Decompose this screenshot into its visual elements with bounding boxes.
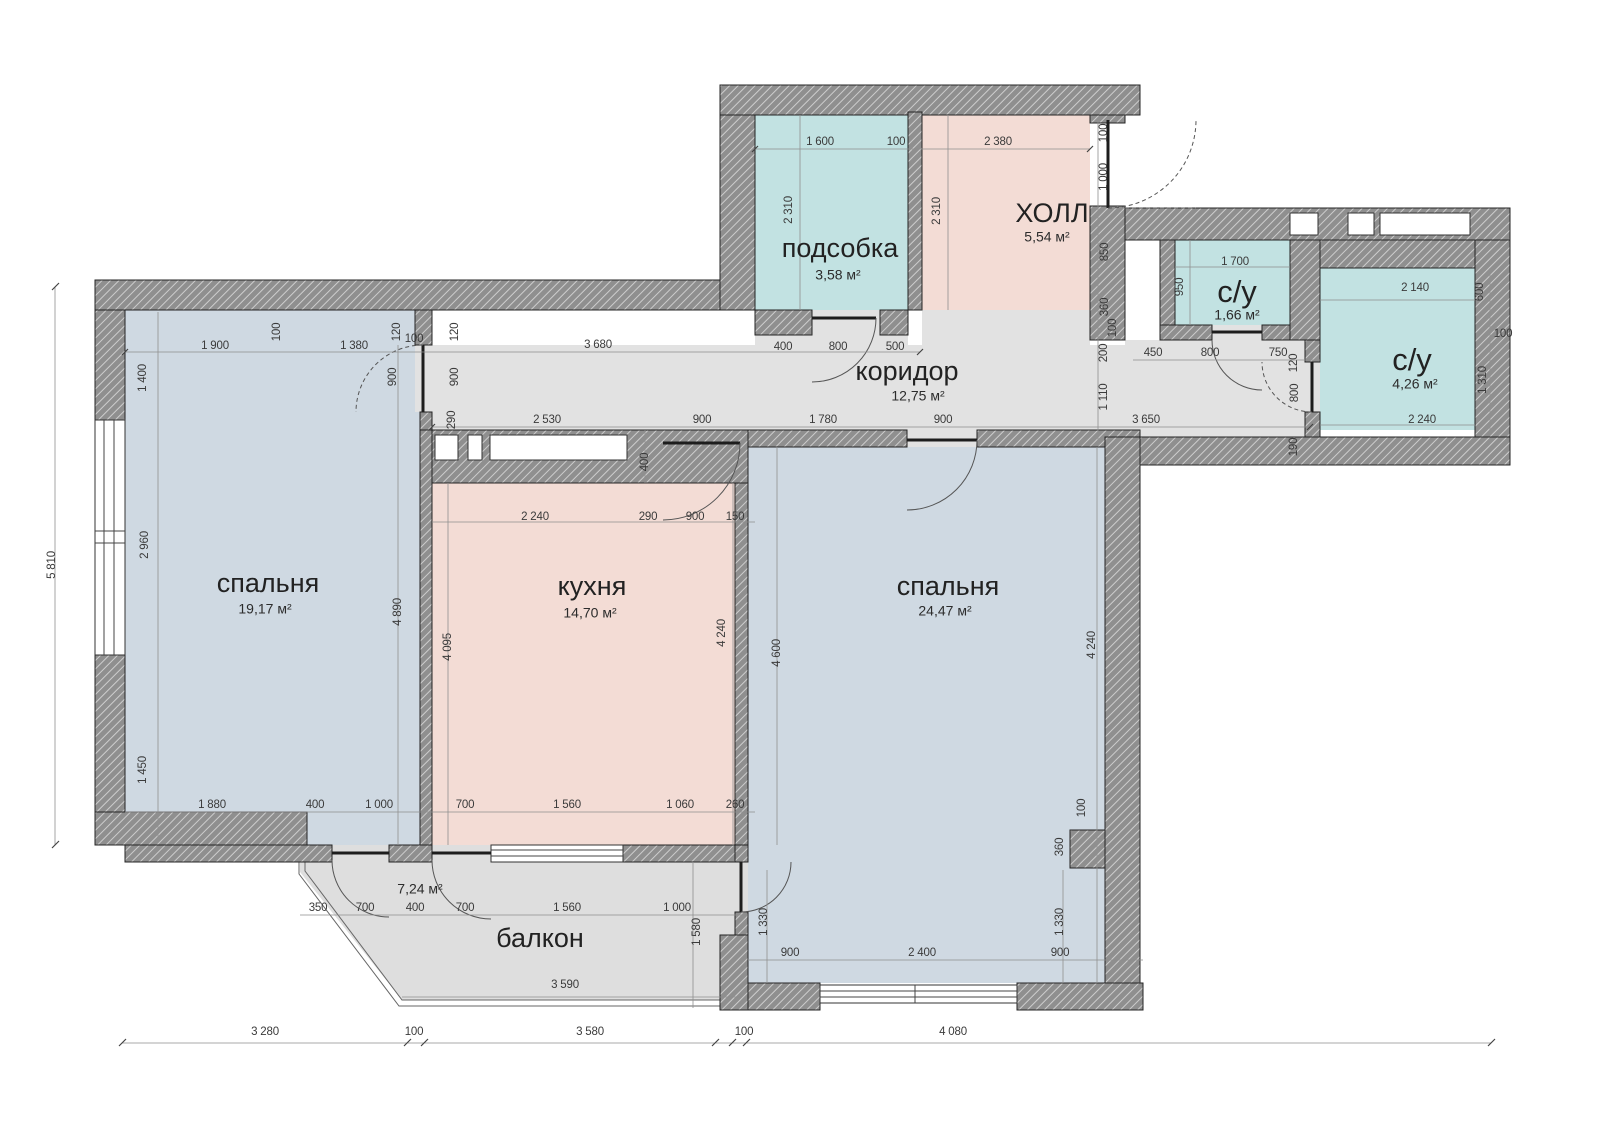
dimension-label: 200	[1098, 344, 1110, 363]
dimension-label: 1 310	[1477, 366, 1489, 394]
dimension-label: 750	[1269, 347, 1288, 359]
dimension-label: 4 240	[716, 619, 728, 647]
dimension-label: 2 530	[533, 414, 561, 426]
dimension-label: 900	[387, 368, 399, 387]
dimension-label: 400	[639, 453, 651, 472]
dimension-label: 800	[829, 341, 848, 353]
dimension-label: 2 240	[521, 511, 549, 523]
dimension-label: 290	[446, 411, 458, 430]
dimension-label: 3 590	[551, 979, 579, 991]
dimension-label: 4 080	[939, 1026, 967, 1038]
dimension-label: 1 900	[201, 340, 229, 352]
dimension-label: 4 890	[392, 598, 404, 626]
dimension-label: 1 560	[553, 799, 581, 811]
dimension-label: 350	[309, 902, 328, 914]
dimension-label: 100	[735, 1026, 754, 1038]
dimension-label: 2 240	[1408, 414, 1436, 426]
bathroom-large-name: с/у	[1392, 342, 1432, 377]
dimension-label: 360	[1099, 298, 1111, 317]
bedroom-left-area: 19,17 м²	[238, 601, 292, 617]
dimension-label: 2 310	[931, 197, 943, 225]
dimension-label: 1 330	[758, 908, 770, 936]
dimension-label: 400	[406, 902, 425, 914]
bathroom-small-area: 1,66 м²	[1214, 307, 1260, 323]
dimension-label: 1 400	[137, 364, 149, 392]
dimension-label: 4 600	[771, 639, 783, 667]
dimension-label: 900	[693, 414, 712, 426]
window-kitchen-balcony	[491, 845, 623, 862]
bedroom-left-name: спальня	[217, 568, 320, 598]
corridor-floor-under-hall	[922, 310, 1090, 345]
dimension-label: 500	[886, 341, 905, 353]
dimension-label: 1 880	[198, 799, 226, 811]
dimension-label: 100	[1107, 319, 1119, 338]
dimension-label: 400	[306, 799, 325, 811]
dimension-label: 120	[391, 323, 403, 342]
balcony-name: балкон	[496, 923, 584, 953]
dimension-label: 2 140	[1401, 282, 1429, 294]
dimension-label: 3 680	[584, 339, 612, 351]
dimension-label: 4 240	[1086, 631, 1098, 659]
dimension-label: 190	[1288, 438, 1300, 457]
dimension-label: 1 700	[1221, 256, 1249, 268]
dimension-label: 260	[726, 799, 745, 811]
dimension-label: 100	[271, 323, 283, 342]
dimension-label: 700	[456, 902, 475, 914]
dimension-label: 900	[1051, 947, 1070, 959]
hall-name: ХОЛЛ	[1015, 198, 1088, 228]
dimension-label: 3 650	[1132, 414, 1160, 426]
dimension-label: 1 450	[137, 756, 149, 784]
bedroom-right-area: 24,47 м²	[918, 603, 972, 619]
dimension-label: 2 400	[908, 947, 936, 959]
bathroom-small-name: с/у	[1217, 274, 1257, 309]
corridor-name: коридор	[855, 356, 958, 386]
dimension-label: 2 310	[783, 196, 795, 224]
dimension-label: 3 280	[251, 1026, 279, 1038]
window-bedroom-left	[95, 420, 125, 655]
door-arc-entrance	[1108, 120, 1196, 208]
dimension-label: 600	[1474, 283, 1486, 302]
dimension-label: 100	[1494, 328, 1513, 340]
dimension-label: 3 580	[576, 1026, 604, 1038]
dimension-label: 4 095	[442, 633, 454, 661]
utility-name: подсобка	[782, 233, 899, 263]
dimension-label: 5 810	[46, 551, 58, 579]
dimension-label: 1 600	[806, 136, 834, 148]
dimension-label: 1 780	[809, 414, 837, 426]
floor-plan-page: спальня 19,17 м² кухня 14,70 м² спальня …	[0, 0, 1600, 1136]
dimension-label: 1 060	[666, 799, 694, 811]
dimension-label: 900	[934, 414, 953, 426]
window-bedroom-right	[820, 985, 1017, 1003]
dimension-label: 800	[1289, 384, 1301, 403]
dimension-label: 850	[1099, 243, 1111, 262]
hall-area: 5,54 м²	[1024, 229, 1070, 245]
dimension-label: 400	[774, 341, 793, 353]
window-bath-slot-1	[1290, 213, 1318, 235]
dimension-label: 120	[1288, 354, 1300, 373]
dimension-label: 950	[1174, 278, 1186, 297]
dimension-label: 700	[356, 902, 375, 914]
dimension-label: 1 560	[553, 902, 581, 914]
dimension-label: 900	[449, 368, 461, 387]
dimension-label: 2 380	[984, 136, 1012, 148]
dimension-label: 100	[1098, 124, 1110, 143]
dimension-label: 100	[887, 136, 906, 148]
dimension-label: 150	[726, 511, 745, 523]
dimension-label: 100	[405, 333, 424, 345]
window-kitchen-slot-2	[468, 435, 482, 460]
bathroom-large-area: 4,26 м²	[1392, 376, 1438, 392]
dimension-label: 1 380	[340, 340, 368, 352]
utility-area: 3,58 м²	[815, 267, 861, 283]
dimension-label: 120	[449, 323, 461, 342]
kitchen-name: кухня	[558, 571, 627, 601]
dimension-label: 360	[1054, 838, 1066, 857]
door-opening-utility	[812, 310, 880, 335]
dimension-label: 100	[1076, 799, 1088, 818]
dimension-label: 1 330	[1054, 908, 1066, 936]
dimension-label: 1 000	[365, 799, 393, 811]
window-kitchen-slot-3	[490, 435, 627, 460]
kitchen-floor	[432, 483, 735, 845]
bedroom-right-name: спальня	[897, 571, 1000, 601]
dimension-label: 1 000	[1098, 163, 1110, 191]
window-kitchen-slot-1	[435, 435, 458, 460]
balcony-area: 7,24 м²	[397, 881, 443, 897]
bedroom-right-floor	[748, 447, 1105, 983]
dimension-label: 1 110	[1098, 384, 1110, 411]
dimension-label: 290	[639, 511, 658, 523]
dimension-label: 1 000	[663, 902, 691, 914]
window-bath-slot-3	[1380, 213, 1470, 235]
dimension-label: 2 960	[139, 531, 151, 559]
dimension-label: 700	[456, 799, 475, 811]
window-bath-slot-2	[1348, 213, 1374, 235]
dimension-label: 900	[781, 947, 800, 959]
dimension-label: 100	[405, 1026, 424, 1038]
dimension-label: 450	[1144, 347, 1163, 359]
dimension-label: 900	[686, 511, 705, 523]
dimension-label: 1 580	[691, 918, 703, 946]
floor-plan-drawing: спальня 19,17 м² кухня 14,70 м² спальня …	[0, 0, 1600, 1136]
dimension-label: 800	[1201, 347, 1220, 359]
corridor-area: 12,75 м²	[891, 388, 945, 404]
kitchen-area: 14,70 м²	[563, 605, 617, 621]
